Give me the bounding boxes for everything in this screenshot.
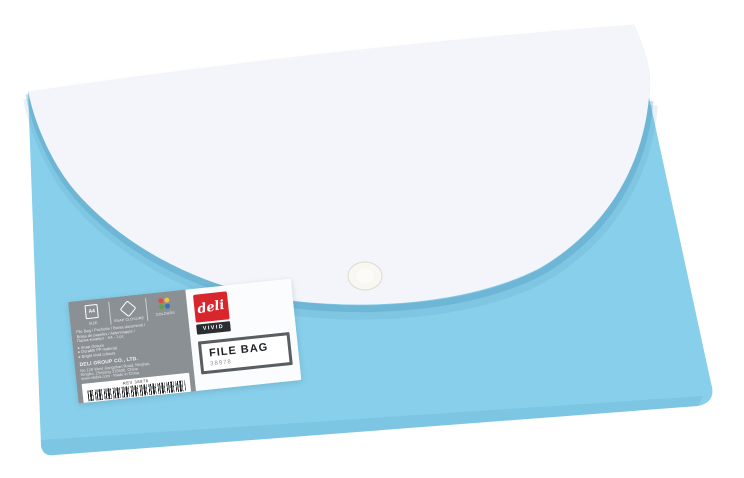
product-photo (0, 0, 744, 478)
deli-logo-text: deli (197, 297, 226, 317)
deli-logo: deli (193, 291, 230, 322)
spec-colours: COLOURS (145, 294, 184, 321)
product-name-box: FILE BAG 38978 (198, 332, 293, 374)
vivid-series-badge: VIVID (196, 321, 231, 334)
colours-icon (158, 297, 170, 309)
label-info-panel: A4 SIZE SNAP CLOSURE COLOURS File Bag / … (68, 290, 196, 404)
file-bag-illustration (0, 0, 744, 478)
a4-size-icon: A4 (85, 304, 99, 319)
spec-caption: SIZE (88, 320, 97, 325)
spec-caption: COLOURS (155, 310, 174, 316)
snap-closure-icon (120, 300, 137, 317)
spec-snap-closure: SNAP CLOSURE (109, 298, 148, 325)
spec-size: A4 SIZE (73, 302, 111, 329)
label-brand-panel: deli VIVID FILE BAG 38978 (185, 279, 301, 392)
snap-button-center (356, 269, 374, 283)
